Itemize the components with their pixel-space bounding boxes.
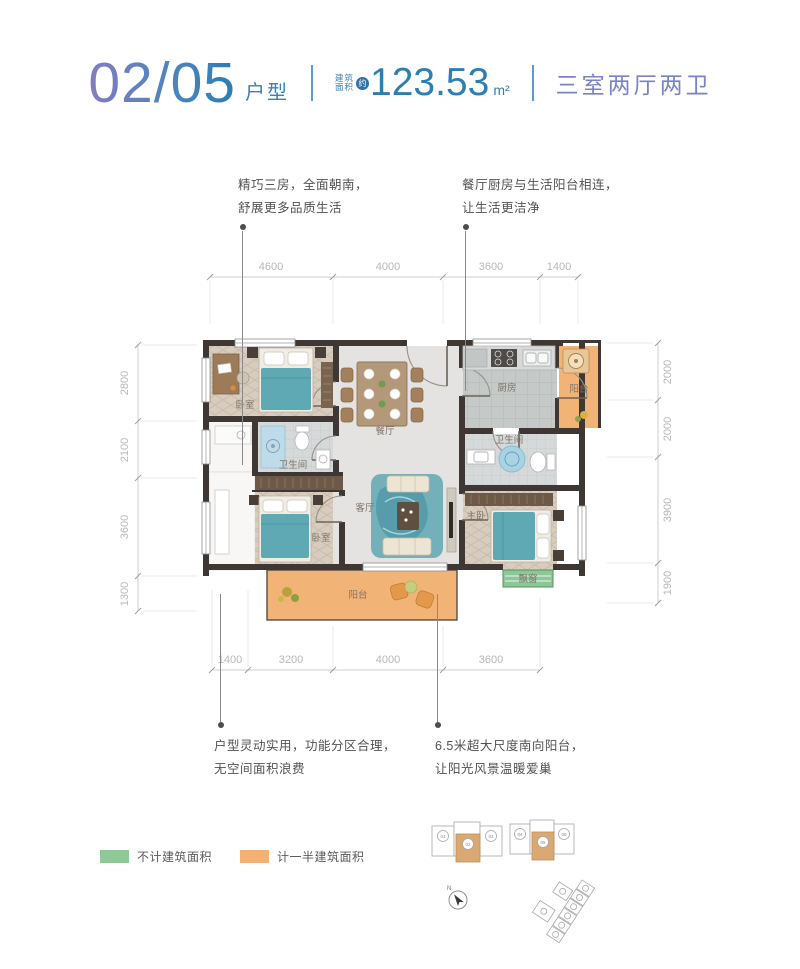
dim-right-3: 3900 [662, 498, 674, 522]
callout-line-bottom-right [437, 594, 438, 722]
callout-line-top-right [465, 231, 466, 391]
key-plan-unit-06: 06 [561, 832, 567, 837]
key-plan-unit-04: 04 [517, 832, 523, 837]
label-balcony-top: 阳台 [569, 383, 588, 395]
label-dining-room: 餐厅 [375, 425, 395, 437]
callout-dot-bottom-left [218, 722, 224, 728]
area-caption: 建筑 面积 [335, 74, 354, 92]
unit-number: 02/05 [88, 54, 236, 112]
label-bedroom-top: 卧室 [235, 399, 254, 411]
dim-bottom-1: 1400 [218, 654, 242, 666]
legend-swatch-orange [240, 850, 269, 863]
label-living-room: 客厅 [355, 502, 375, 514]
legend: 不计建筑面积 计一半建筑面积 [100, 848, 365, 865]
dim-top-2: 4000 [376, 261, 400, 273]
dim-right-2: 2000 [662, 417, 674, 441]
dim-left-1: 2800 [119, 371, 131, 395]
floorplan-page: 02/05 户型 建筑 面积 约 123.53 m² 三室两厅两卫 精巧三房，全… [0, 0, 800, 969]
key-plan: 01 02 03 04 05 06 [424, 814, 634, 959]
rooms-summary: 三室两厅两卫 [556, 66, 712, 100]
label-balcony-bottom: 阳台 [348, 589, 367, 601]
key-plan-unit-03: 03 [488, 834, 494, 839]
dim-bottom-2: 3200 [279, 654, 303, 666]
unit-type-label: 户型 [245, 76, 289, 112]
callout-dot-top-left [240, 224, 246, 230]
approx-badge: 约 [356, 77, 369, 90]
annotation-bottom-left: 户型灵动实用，功能分区合理， 无空间面积浪费 [214, 735, 396, 781]
furniture-kitchen [463, 346, 555, 370]
key-plan-unit-02: 02 [465, 842, 471, 847]
area-value: 123.53 [370, 63, 489, 103]
dim-right-4: 1900 [662, 571, 674, 595]
wardrobe-strip [255, 476, 343, 490]
compass-icon: N [447, 886, 467, 909]
legend-item-half-area: 计一半建筑面积 [240, 848, 365, 865]
annotation-top-right: 餐厅厨房与生活阳台相连， 让生活更洁净 [462, 174, 618, 220]
area-group: 建筑 面积 约 123.53 m² [335, 63, 510, 103]
dim-left-2: 2100 [119, 438, 131, 462]
label-master-bedroom: 主卧 [466, 510, 486, 522]
key-plan-building-cluster [526, 867, 594, 943]
legend-swatch-green [100, 850, 129, 863]
label-bathroom-right: 卫生间 [495, 434, 524, 446]
callout-dot-top-right [463, 224, 469, 230]
dim-top-1: 4600 [259, 261, 283, 273]
annotation-bottom-right: 6.5米超大尺度南向阳台， 让阳光风景温暖爱巢 [435, 735, 584, 781]
dim-top-4: 1400 [547, 261, 571, 273]
callout-line-top-left [242, 231, 243, 465]
area-caption-bottom: 面积 [335, 83, 354, 92]
dim-bottom-4: 3600 [479, 654, 503, 666]
dim-bottom-3: 4000 [376, 654, 400, 666]
callout-dot-bottom-right [435, 722, 441, 728]
dim-top-3: 3600 [479, 261, 503, 273]
label-bay-window: 飘窗 [518, 573, 537, 585]
key-plan-unit-01: 01 [440, 834, 446, 839]
dim-left-3: 3600 [119, 515, 131, 539]
key-plan-unit-05: 05 [540, 840, 546, 845]
unit-group: 02/05 户型 [88, 54, 289, 112]
title-bar: 02/05 户型 建筑 面积 约 123.53 m² 三室两厅两卫 [0, 54, 800, 112]
header-divider [532, 65, 534, 101]
furniture-dining [341, 362, 423, 426]
legend-item-no-area: 不计建筑面积 [100, 848, 212, 865]
dim-left-4: 1300 [119, 582, 131, 606]
legend-label-no-area: 不计建筑面积 [137, 848, 212, 865]
dim-right-1: 2000 [662, 360, 674, 384]
callout-line-bottom-left [220, 594, 221, 722]
area-unit: m² [493, 82, 509, 103]
annotation-top-left: 精巧三房，全面朝南， 舒展更多品质生活 [238, 174, 368, 220]
legend-label-half-area: 计一半建筑面积 [277, 848, 365, 865]
compass-north-label: N [447, 886, 451, 892]
label-kitchen: 厨房 [497, 382, 516, 394]
label-bedroom-bottom: 卧室 [311, 532, 330, 544]
header-divider [311, 65, 313, 101]
label-bathroom-left: 卫生间 [279, 459, 308, 471]
floor-plan: 卧室 餐厅 厨房 阳台 卫生间 卫生间 客厅 卧室 主卧 飘窗 阳台 [95, 250, 705, 690]
